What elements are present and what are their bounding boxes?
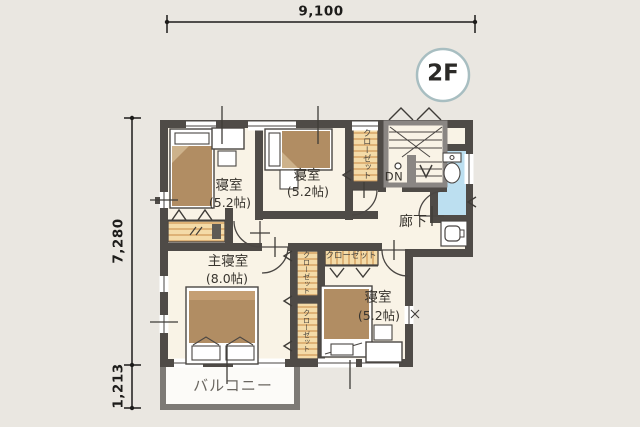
closet-drawer bbox=[212, 224, 221, 239]
closet-master-lower-label: クローゼット bbox=[303, 309, 310, 352]
bedroom-se-name: 寝室 bbox=[365, 291, 392, 305]
toilet-fixture bbox=[443, 153, 461, 183]
floor-badge: 2F bbox=[427, 63, 459, 86]
desk-se bbox=[366, 342, 402, 362]
hallway-label: 廊下 bbox=[399, 215, 427, 229]
bed-master bbox=[186, 287, 258, 364]
closet-master-upper-label: クローゼット bbox=[303, 251, 310, 294]
dimension-height-balcony: 1,213 bbox=[112, 363, 126, 408]
closet-se-label: クローゼット bbox=[325, 252, 376, 261]
bedroom-n-name: 寝室 bbox=[294, 169, 321, 183]
floor-plan-drawing bbox=[0, 0, 640, 427]
floor-plan-page: 9,100 7,280 1,213 2F 寝室 (5.2帖) 寝室 (5.2帖)… bbox=[0, 0, 640, 427]
chair-nw bbox=[218, 151, 236, 166]
desk-nw bbox=[212, 128, 244, 149]
bedroom-se-size: (5.2帖) bbox=[358, 310, 400, 323]
bedroom-n-size: (5.2帖) bbox=[287, 186, 329, 199]
stairs-dn-label: DN bbox=[385, 171, 403, 183]
dimension-height-main: 7,280 bbox=[112, 218, 126, 263]
bedroom-nw-name: 寝室 bbox=[216, 179, 243, 193]
washbasin bbox=[441, 221, 467, 246]
stairs-start-mark bbox=[395, 163, 401, 169]
bed-nw bbox=[170, 129, 214, 208]
master-bedroom-size: (8.0帖) bbox=[206, 273, 248, 286]
bedroom-nw-size: (5.2帖) bbox=[209, 197, 251, 210]
dimension-width-total: 9,100 bbox=[298, 5, 343, 19]
closet-north-label: クローゼット bbox=[362, 129, 371, 180]
chair-se bbox=[374, 325, 392, 340]
bed-n bbox=[265, 129, 332, 170]
master-bedroom-name: 主寝室 bbox=[208, 255, 249, 269]
balcony-label: バルコニー bbox=[193, 379, 273, 394]
